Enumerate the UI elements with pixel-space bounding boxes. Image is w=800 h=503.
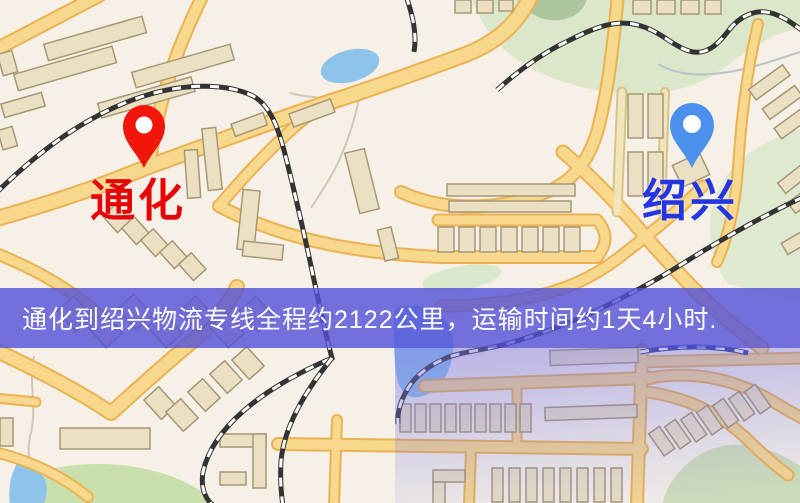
origin-pin-icon[interactable] <box>120 104 168 170</box>
map-background <box>0 0 800 503</box>
destination-label: 绍兴 <box>642 179 738 224</box>
origin-label: 通化 <box>90 179 186 224</box>
destination-pin-icon[interactable] <box>667 102 717 170</box>
route-info-text: 通化到绍兴物流专线全程约2122公里，运输时间约1天4小时. <box>0 300 717 336</box>
route-info-banner: 通化到绍兴物流专线全程约2122公里，运输时间约1天4小时. <box>0 288 800 348</box>
map-image[interactable]: 通化 绍兴 通化到绍兴物流专线全程约2122公里，运输时间约1天4小时. <box>0 0 800 503</box>
